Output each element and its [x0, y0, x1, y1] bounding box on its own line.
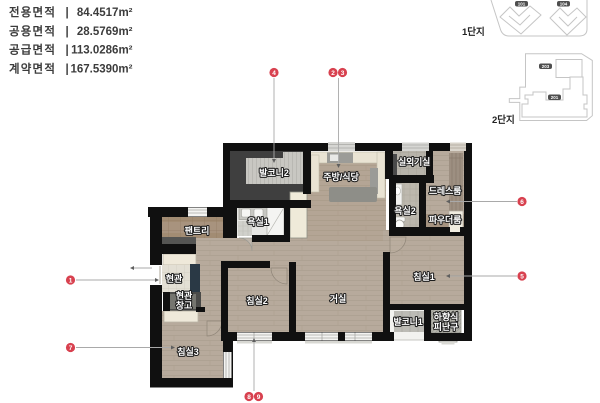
svg-text:거실: 거실 [330, 293, 347, 304]
svg-text:1단지: 1단지 [462, 26, 485, 38]
svg-text:2: 2 [331, 70, 335, 77]
svg-text:|: | [66, 7, 69, 19]
svg-text:|: | [66, 26, 69, 38]
svg-text:주방/식당: 주방/식당 [323, 171, 359, 182]
svg-text:167.5390m²: 167.5390m² [70, 64, 132, 76]
svg-text:실외기실: 실외기실 [398, 156, 430, 167]
svg-text:하향식: 하향식 [434, 311, 459, 322]
svg-text:201: 201 [551, 95, 559, 100]
svg-text:전용면적: 전용면적 [9, 5, 56, 19]
svg-text:계약면적: 계약면적 [9, 62, 56, 76]
svg-text:8: 8 [247, 394, 251, 401]
svg-text:피난구: 피난구 [434, 321, 459, 332]
svg-text:113.0286m²: 113.0286m² [71, 45, 133, 57]
svg-text:침실1: 침실1 [413, 271, 435, 282]
svg-text:|: | [66, 45, 69, 57]
svg-text:욕실1: 욕실1 [247, 216, 269, 227]
svg-text:현관: 현관 [176, 290, 193, 301]
svg-text:발코니2: 발코니2 [259, 167, 289, 178]
svg-text:드레스룸: 드레스룸 [429, 185, 461, 196]
svg-text:7: 7 [69, 345, 73, 352]
svg-text:침실3: 침실3 [177, 346, 199, 357]
svg-text:침실2: 침실2 [246, 295, 268, 306]
svg-text:104: 104 [560, 1, 568, 6]
svg-text:1: 1 [69, 277, 73, 284]
svg-text:현관: 현관 [166, 273, 183, 284]
svg-text:6: 6 [520, 199, 524, 206]
svg-text:101: 101 [518, 1, 526, 6]
svg-text:파우더룸: 파우더룸 [429, 214, 461, 225]
svg-text:|: | [66, 64, 69, 76]
svg-text:공용면적: 공용면적 [9, 24, 56, 38]
svg-text:9: 9 [257, 394, 261, 401]
svg-text:발코니1: 발코니1 [393, 316, 422, 327]
svg-text:2단지: 2단지 [492, 114, 515, 126]
svg-text:욕실2: 욕실2 [394, 205, 416, 216]
svg-text:팬트리: 팬트리 [185, 225, 210, 236]
svg-text:28.5769m²: 28.5769m² [77, 26, 133, 38]
svg-text:공급면적: 공급면적 [9, 43, 56, 57]
svg-text:창고: 창고 [176, 300, 193, 311]
svg-text:84.4517m²: 84.4517m² [77, 7, 133, 19]
svg-text:5: 5 [520, 273, 524, 280]
svg-text:4: 4 [272, 70, 276, 77]
svg-text:203: 203 [542, 64, 550, 69]
svg-text:3: 3 [341, 70, 345, 77]
